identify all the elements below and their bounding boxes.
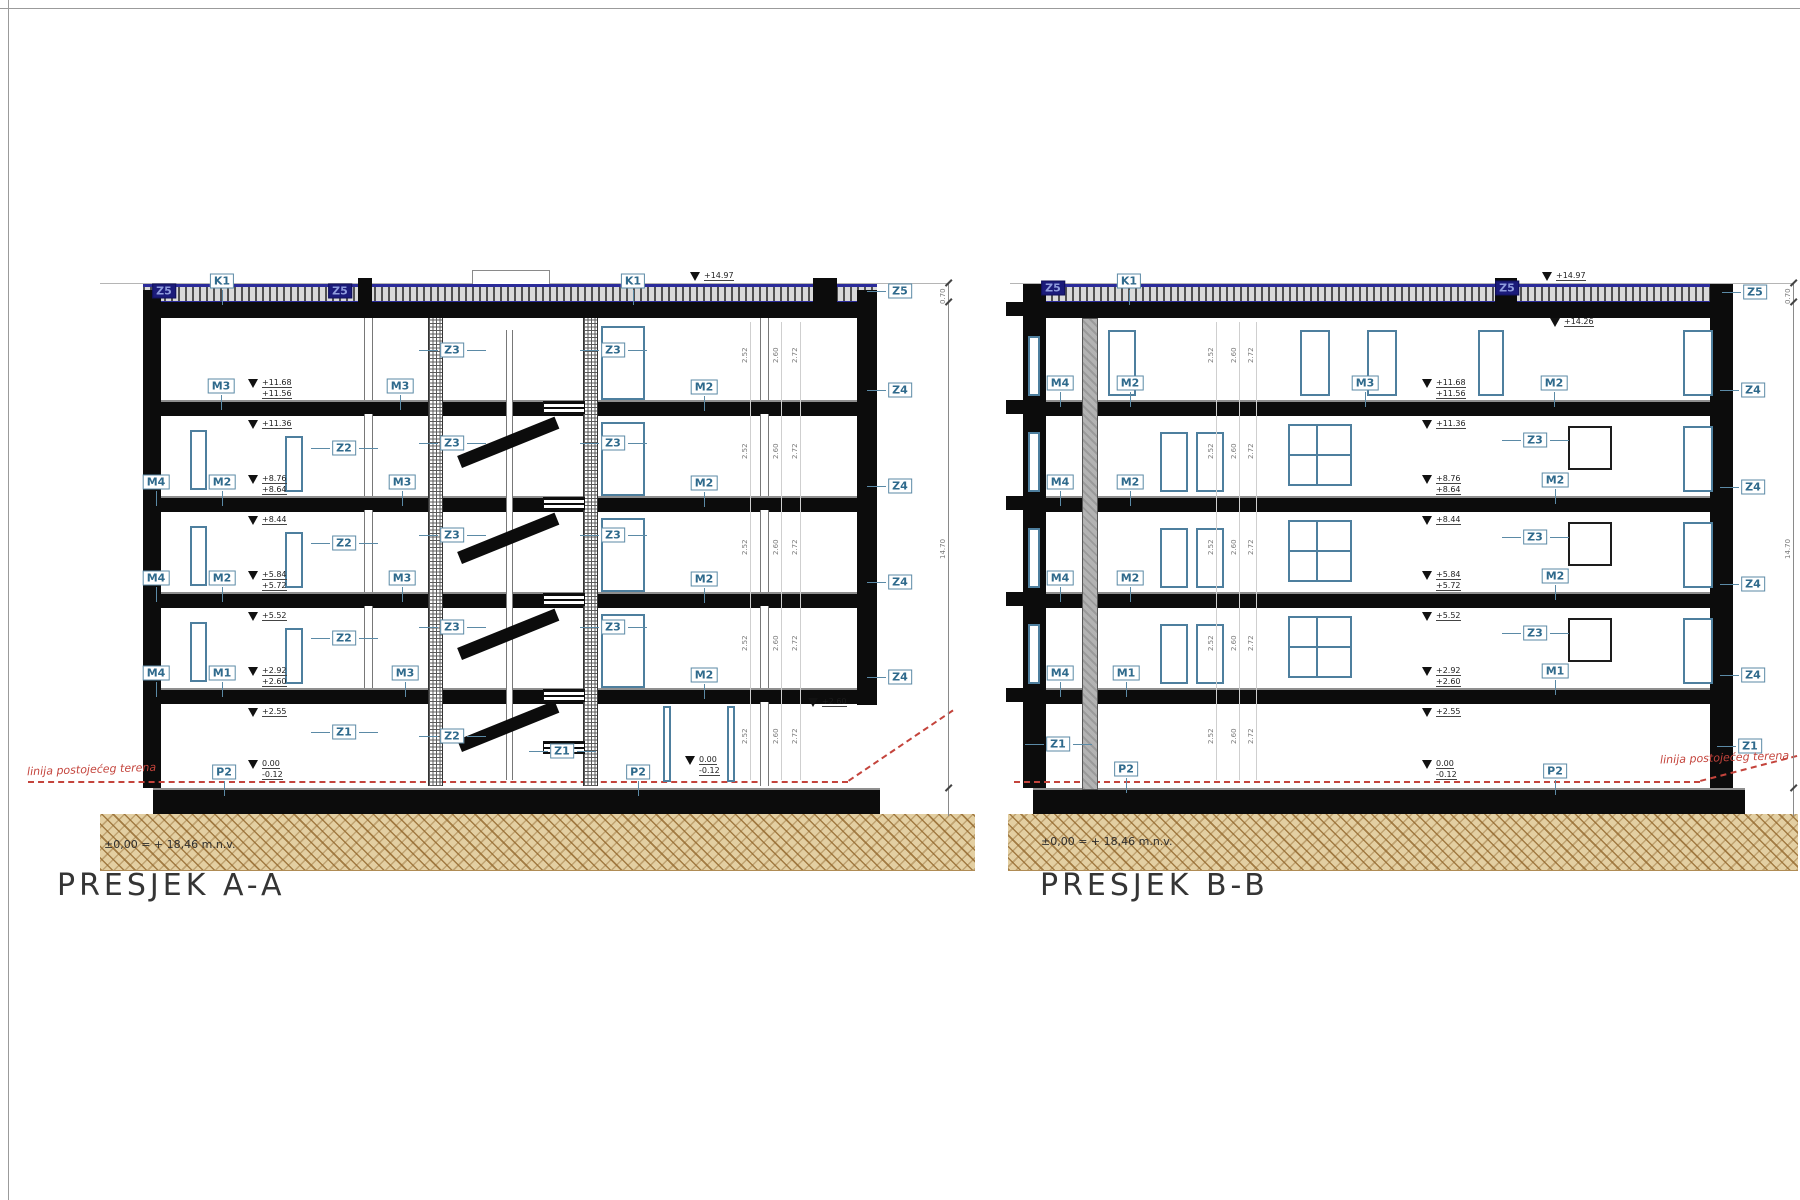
wall-tag-m2: M2 [691, 572, 718, 587]
wall-tag-m2: M2 [1117, 475, 1144, 490]
label-leader-line [529, 751, 548, 752]
wall-tag-z3: Z3 [440, 528, 464, 543]
elevation-value: +8.76 [1436, 474, 1461, 484]
label-leader-line [1126, 778, 1127, 793]
wall-tag-m3: M3 [392, 666, 419, 681]
wall-tag-z4: Z4 [1741, 577, 1765, 592]
window [1683, 426, 1713, 492]
dimension-chain-value: 2.52 [1207, 437, 1217, 459]
label-leader-line [628, 535, 647, 536]
elevation-value: -0.12 [1436, 770, 1457, 780]
label-leader-line [311, 732, 330, 733]
label-leader-line [222, 587, 223, 602]
terrain-line [1014, 781, 1700, 785]
wall-tag-m1: M1 [1113, 666, 1140, 681]
dimension-chain-value: 2.52 [1207, 533, 1217, 555]
elevation-value: +5.52 [262, 611, 287, 621]
label-leader-line [467, 736, 486, 737]
elevation-marker-icon [1422, 667, 1432, 676]
label-leader-line [1717, 746, 1736, 747]
label-leader-line [467, 535, 486, 536]
elevation-value: +11.36 [262, 419, 292, 429]
label-leader-line [867, 582, 886, 583]
window-with-mullions [1288, 424, 1352, 486]
section-b-drawing: 2.522.522.522.522.522.602.602.602.602.60… [0, 0, 1800, 1200]
datum-note-a: ±0,00 = + 18,46 m.n.v. [104, 838, 235, 851]
elevation-value: +2.60 [1436, 677, 1461, 687]
window-mullion-h [1290, 454, 1350, 456]
label-leader-line [1025, 744, 1044, 745]
label-leader-line [1060, 392, 1061, 407]
wall-tag-m4: M4 [1047, 571, 1074, 586]
small-window [1568, 426, 1612, 470]
balcony-door [1028, 528, 1040, 588]
elevation-marker-icon [1422, 612, 1432, 621]
wall-tag-m3: M3 [208, 379, 235, 394]
wall-tag-z4: Z4 [1741, 383, 1765, 398]
label-leader-line [359, 732, 378, 733]
balcony-door [1028, 432, 1040, 492]
label-leader-line [1550, 440, 1569, 441]
label-leader-line [1550, 633, 1569, 634]
exterior-wall-right [1710, 284, 1733, 788]
wall-tag-z3: Z3 [601, 620, 625, 635]
wall-tag-m3: M3 [389, 475, 416, 490]
datum-note-b: ±0,00 = + 18,46 m.n.v. [1041, 835, 1172, 848]
elevation-value: +5.72 [262, 581, 287, 591]
elevation-value: +14.97 [704, 271, 734, 281]
label-leader-line [1130, 587, 1131, 602]
elevation-marker-icon [1550, 318, 1560, 327]
label-leader-line [867, 677, 886, 678]
wall-tag-m2: M2 [691, 476, 718, 491]
label-leader-line [580, 535, 599, 536]
elevation-marker-icon [1422, 475, 1432, 484]
window-mullion-h [1290, 646, 1350, 648]
label-leader-line [1060, 682, 1061, 697]
label-leader-line [867, 486, 886, 487]
label-leader-line [704, 684, 705, 699]
label-leader-line [704, 492, 705, 507]
wall-tag-p2: P2 [1543, 764, 1567, 779]
wall-tag-z5: Z5 [1495, 281, 1519, 296]
door [1160, 528, 1188, 588]
dimension-chain-value: 2.72 [1247, 437, 1257, 459]
label-leader-line [1126, 682, 1127, 697]
label-leader-line [1720, 487, 1739, 488]
wall-tag-z5: Z5 [152, 284, 176, 299]
elevation-marker-icon [1422, 571, 1432, 580]
elevation-value: +11.68 [262, 378, 292, 388]
roof-slab [1030, 302, 1733, 318]
elevation-value: +11.36 [1436, 419, 1466, 429]
label-leader-line [1129, 290, 1130, 305]
floor-slab [1046, 400, 1710, 416]
wall-tag-z1: Z1 [1046, 737, 1070, 752]
wall-tag-p2: P2 [626, 765, 650, 780]
elevation-value: +14.26 [1564, 317, 1594, 327]
wall-tag-m3: M3 [387, 379, 414, 394]
label-leader-line [359, 448, 378, 449]
label-leader-line [419, 535, 438, 536]
label-leader-line [1060, 491, 1061, 506]
elevation-value: +11.56 [1436, 389, 1466, 399]
small-window [1568, 522, 1612, 566]
label-leader-line [419, 350, 438, 351]
elevation-value: +5.52 [1436, 611, 1461, 621]
wall-tag-z3: Z3 [1523, 433, 1547, 448]
wall-tag-z5: Z5 [1743, 285, 1767, 300]
wall-tag-k1: K1 [621, 274, 645, 289]
label-leader-line [402, 491, 403, 506]
window [1478, 330, 1504, 396]
wall-tag-m2: M2 [1542, 569, 1569, 584]
label-leader-line [222, 491, 223, 506]
balcony-slab-edge [1006, 688, 1023, 702]
label-leader-line [311, 638, 330, 639]
wall-tag-z4: Z4 [888, 479, 912, 494]
wall-tag-z4: Z4 [1741, 668, 1765, 683]
elevation-value: -0.12 [699, 766, 720, 776]
label-leader-line [1720, 675, 1739, 676]
wall-tag-z2: Z2 [332, 631, 356, 646]
wall-tag-m1: M1 [209, 666, 236, 681]
label-leader-line [1130, 491, 1131, 506]
elevation-value: +2.55 [262, 707, 287, 717]
wall-tag-m3: M3 [1352, 376, 1379, 391]
foundation-slab [1033, 788, 1745, 816]
wall-tag-z4: Z4 [888, 575, 912, 590]
wall-tag-z3: Z3 [440, 343, 464, 358]
dimension-chain-value: 2.60 [1230, 629, 1240, 651]
label-leader-line [224, 781, 225, 796]
floor-slab [1046, 688, 1710, 704]
label-leader-line [400, 395, 401, 410]
balcony-slab-edge [1006, 302, 1023, 316]
label-leader-line [1555, 585, 1556, 600]
elevation-value: +14.97 [1556, 271, 1586, 281]
label-leader-line [467, 350, 486, 351]
dimension-chain-value: 2.60 [1230, 722, 1240, 744]
wall-tag-m2: M2 [691, 380, 718, 395]
wall-tag-z2: Z2 [332, 441, 356, 456]
elevation-value: +5.84 [1436, 570, 1461, 580]
elevation-value: 0.00 [1436, 759, 1454, 769]
label-leader-line [638, 781, 639, 796]
dimension-chain-value: 2.72 [1247, 341, 1257, 363]
elevation-marker-icon [1422, 708, 1432, 717]
label-leader-line [867, 390, 886, 391]
elevation-value: +2.92 [262, 666, 287, 676]
wall-tag-z2: Z2 [332, 536, 356, 551]
elevation-value: +2.92 [1436, 666, 1461, 676]
window [1300, 330, 1330, 396]
elevation-value: +2.60 [822, 697, 847, 707]
parapet-dimension: 0.70 [1784, 282, 1794, 304]
wall-tag-z3: Z3 [440, 436, 464, 451]
elevation-value: 0.00 [699, 755, 717, 765]
wall-tag-m2: M2 [1117, 571, 1144, 586]
label-leader-line [628, 627, 647, 628]
window [1683, 330, 1713, 396]
label-leader-line [1502, 537, 1521, 538]
floor-slab [1046, 496, 1710, 512]
label-leader-line [359, 543, 378, 544]
wall-tag-z5: Z5 [1041, 281, 1065, 296]
balcony-slab-edge [1006, 496, 1023, 510]
wall-tag-m2: M2 [1542, 473, 1569, 488]
label-leader-line [311, 543, 330, 544]
label-leader-line [1555, 489, 1556, 504]
label-leader-line [156, 491, 157, 506]
label-leader-line [221, 395, 222, 410]
balcony-slab-edge [1006, 400, 1023, 414]
elevation-value: +11.68 [1436, 378, 1466, 388]
label-leader-line [419, 443, 438, 444]
label-leader-line [1555, 780, 1556, 795]
label-leader-line [1130, 392, 1131, 407]
section-title-a: PRESJEK A-A [57, 868, 286, 903]
label-leader-line [1073, 744, 1092, 745]
label-leader-line [405, 682, 406, 697]
wall-tag-z3: Z3 [601, 436, 625, 451]
label-leader-line [628, 350, 647, 351]
elevation-value: +8.64 [1436, 485, 1461, 495]
label-leader-line [580, 443, 599, 444]
label-leader-line [1722, 292, 1741, 293]
wall-tag-m4: M4 [1047, 376, 1074, 391]
wall-tag-k1: K1 [1117, 274, 1141, 289]
elevation-value: +11.56 [262, 389, 292, 399]
label-leader-line [1720, 390, 1739, 391]
small-window [1568, 618, 1612, 662]
dimension-chain-value: 2.72 [1247, 533, 1257, 555]
elevation-value: +5.84 [262, 570, 287, 580]
wall-tag-k1: K1 [210, 274, 234, 289]
window-mullion-h [1290, 550, 1350, 552]
wall-tag-m4: M4 [1047, 666, 1074, 681]
elevation-value: +8.64 [262, 485, 287, 495]
dimension-chain-value: 2.52 [1207, 722, 1217, 744]
wall-tag-m4: M4 [143, 666, 170, 681]
dimension-chain-value: 2.52 [1207, 629, 1217, 651]
label-leader-line [867, 291, 886, 292]
label-leader-line [311, 448, 330, 449]
label-leader-line [402, 587, 403, 602]
window [1683, 618, 1713, 684]
wall-tag-m2: M2 [691, 668, 718, 683]
wall-tag-m4: M4 [143, 571, 170, 586]
wall-tag-m4: M4 [143, 475, 170, 490]
dimension-chain-value: 2.72 [1247, 722, 1257, 744]
elevation-marker-icon [1422, 420, 1432, 429]
wall-tag-m2: M2 [209, 475, 236, 490]
window-with-mullions [1288, 616, 1352, 678]
label-leader-line [704, 588, 705, 603]
label-leader-line [633, 290, 634, 305]
elevation-value: +2.60 [262, 677, 287, 687]
label-leader-line [1720, 584, 1739, 585]
label-leader-line [1555, 680, 1556, 695]
elevation-value: +8.76 [262, 474, 287, 484]
elevation-value: +8.44 [1436, 515, 1461, 525]
wall-tag-z3: Z3 [1523, 530, 1547, 545]
label-leader-line [359, 638, 378, 639]
label-leader-line [1550, 537, 1569, 538]
elevation-value: -0.12 [262, 770, 283, 780]
elevation-value: +2.55 [1436, 707, 1461, 717]
wall-tag-z3: Z3 [601, 343, 625, 358]
label-leader-line [419, 627, 438, 628]
label-leader-line [156, 682, 157, 697]
door [1160, 624, 1188, 684]
wall-tag-m4: M4 [1047, 475, 1074, 490]
door [1160, 432, 1188, 492]
wall-tag-z4: Z4 [888, 670, 912, 685]
wall-tag-m1: M1 [1542, 664, 1569, 679]
label-leader-line [222, 682, 223, 697]
label-leader-line [467, 443, 486, 444]
label-leader-line [628, 443, 647, 444]
dimension-chain-value: 2.52 [1207, 341, 1217, 363]
label-leader-line [1502, 633, 1521, 634]
wall-tag-z3: Z3 [440, 620, 464, 635]
window-with-mullions [1288, 520, 1352, 582]
drawing-sheet: 2.522.522.522.522.522.602.602.602.602.60… [0, 0, 1800, 1200]
wall-tag-z3: Z3 [601, 528, 625, 543]
label-leader-line [577, 751, 596, 752]
elevation-marker-icon [1542, 272, 1552, 281]
elevation-marker-icon [1422, 516, 1432, 525]
dimension-chain-value: 2.60 [1230, 437, 1240, 459]
elevation-marker-icon [1422, 379, 1432, 388]
wall-tag-z5: Z5 [328, 284, 352, 299]
wall-tag-m2: M2 [209, 571, 236, 586]
elevation-value: 0.00 [262, 759, 280, 769]
wall-tag-p2: P2 [212, 765, 236, 780]
wall-tag-z4: Z4 [888, 383, 912, 398]
window [1683, 522, 1713, 588]
wall-tag-z1: Z1 [550, 744, 574, 759]
section-title-b: PRESJEK B-B [1040, 868, 1269, 903]
balcony-door [1028, 336, 1040, 396]
wall-tag-m2: M2 [1117, 376, 1144, 391]
label-leader-line [1502, 440, 1521, 441]
label-leader-line [580, 350, 599, 351]
label-leader-line [1365, 392, 1366, 407]
elevation-marker-icon [1422, 760, 1432, 769]
label-leader-line [704, 396, 705, 411]
label-leader-line [1060, 587, 1061, 602]
wall-tag-z4: Z4 [1741, 480, 1765, 495]
wall-tag-z1: Z1 [332, 725, 356, 740]
floor-slab [1046, 592, 1710, 608]
balcony-slab-edge [1006, 592, 1023, 606]
label-leader-line [580, 627, 599, 628]
label-leader-line [419, 736, 438, 737]
wall-tag-m2: M2 [1541, 376, 1568, 391]
label-leader-line [222, 290, 223, 305]
total-height-dimension: 14.70 [1784, 531, 1794, 559]
dimension-chain-value: 2.60 [1230, 533, 1240, 555]
wall-tag-p2: P2 [1114, 762, 1138, 777]
label-leader-line [156, 587, 157, 602]
label-leader-line [1554, 392, 1555, 407]
dimension-chain-value: 2.72 [1247, 629, 1257, 651]
wall-tag-z5: Z5 [888, 284, 912, 299]
elevator-shaft-wall [1082, 318, 1098, 790]
label-leader-line [467, 627, 486, 628]
wall-tag-z2: Z2 [440, 729, 464, 744]
elevation-value: +5.72 [1436, 581, 1461, 591]
wall-tag-m3: M3 [389, 571, 416, 586]
balcony-door [1028, 624, 1040, 684]
dimension-chain-value: 2.60 [1230, 341, 1240, 363]
elevation-value: +8.44 [262, 515, 287, 525]
wall-tag-z3: Z3 [1523, 626, 1547, 641]
